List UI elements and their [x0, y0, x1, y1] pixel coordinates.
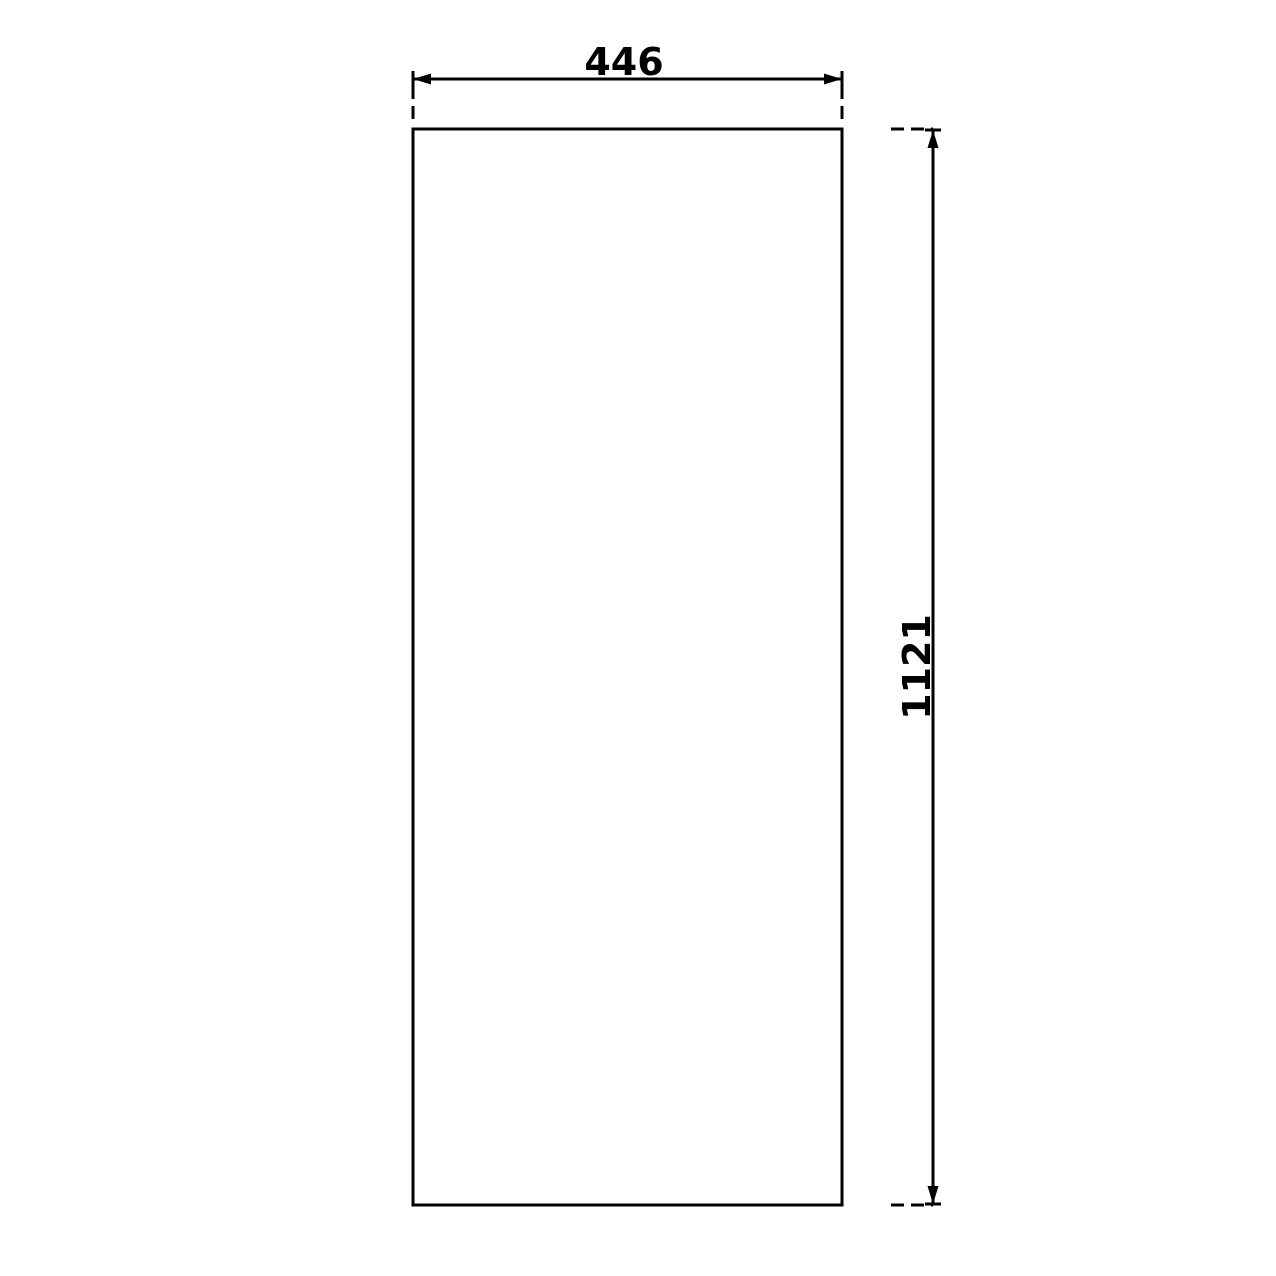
technical-drawing: 446 1121	[0, 0, 1276, 1276]
drawing-canvas: 446 1121	[0, 0, 1276, 1276]
width-arrow-left-icon	[413, 74, 431, 85]
panel-outline-rect	[413, 129, 842, 1205]
height-dimension: 1121	[891, 129, 941, 1205]
height-arrow-bottom-icon	[928, 1186, 939, 1204]
width-arrow-right-icon	[824, 74, 842, 85]
height-dimension-label: 1121	[895, 614, 939, 720]
height-arrow-top-icon	[928, 130, 939, 148]
width-dimension-label: 446	[584, 40, 663, 84]
width-dimension: 446	[413, 40, 842, 123]
